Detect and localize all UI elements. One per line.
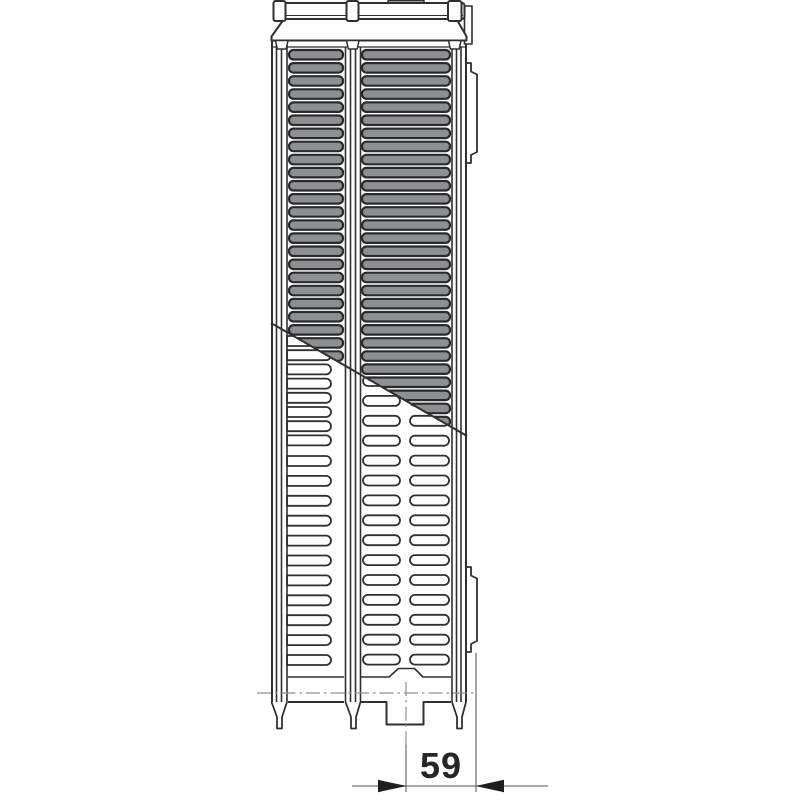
grille-slot bbox=[362, 181, 450, 191]
radiator-technical-diagram: 59 bbox=[0, 0, 800, 800]
fin-slot bbox=[410, 655, 449, 665]
radiator-drawing-canvas: 59 bbox=[0, 0, 800, 800]
fin-bar bbox=[287, 536, 331, 546]
grille-slot bbox=[289, 168, 343, 178]
grille-slot bbox=[289, 233, 343, 243]
grille-slot bbox=[362, 233, 450, 243]
grille-slot bbox=[362, 273, 450, 283]
grille-slot bbox=[362, 364, 450, 374]
grille-slot bbox=[289, 181, 343, 191]
grille-slot bbox=[362, 207, 450, 217]
fin-slot bbox=[410, 615, 449, 625]
grille-slot bbox=[362, 102, 450, 112]
grille-slot bbox=[362, 220, 450, 230]
fin-slot bbox=[363, 575, 400, 585]
grille-slot bbox=[362, 247, 450, 257]
grille-slot bbox=[362, 76, 450, 86]
channel-tip-left bbox=[272, 702, 288, 729]
fin-bar bbox=[287, 364, 331, 374]
fin-bar bbox=[287, 496, 331, 506]
fin-slot bbox=[410, 575, 449, 585]
grille-slot bbox=[362, 116, 450, 126]
grille-slot bbox=[289, 273, 343, 283]
grille-slot bbox=[289, 286, 343, 296]
channel-tip-right bbox=[452, 702, 466, 729]
grille-slot bbox=[362, 50, 450, 60]
grille-slot bbox=[362, 325, 450, 335]
fin-slot bbox=[410, 456, 449, 466]
grille-slot bbox=[289, 247, 343, 257]
fin-bar bbox=[287, 476, 331, 486]
grille-slot bbox=[362, 351, 450, 361]
grille-slot bbox=[289, 299, 343, 309]
dimension-label: 59 bbox=[420, 745, 462, 786]
grille-slot bbox=[362, 89, 450, 99]
dimension-arrow-right bbox=[476, 780, 505, 792]
fin-slot bbox=[363, 436, 400, 446]
grille-slot bbox=[289, 89, 343, 99]
channel-tip-middle bbox=[346, 702, 361, 729]
fin-slot bbox=[363, 535, 400, 545]
grille-slot bbox=[362, 312, 450, 322]
grille-slot bbox=[362, 260, 450, 270]
grille-slot bbox=[289, 129, 343, 139]
fin-bar bbox=[287, 393, 331, 403]
grille-slot bbox=[289, 155, 343, 165]
fin-slot bbox=[410, 555, 449, 565]
fin-slot bbox=[410, 635, 449, 645]
dimension-arrow-left bbox=[378, 780, 407, 792]
fin-slot bbox=[363, 655, 400, 665]
fin-slot bbox=[363, 515, 400, 525]
fin-slot bbox=[363, 416, 400, 426]
grille-slot bbox=[289, 194, 343, 204]
grille-slot bbox=[362, 286, 450, 296]
lower-wall-bracket bbox=[466, 567, 477, 652]
grille-slot bbox=[289, 312, 343, 322]
fin-slot bbox=[410, 476, 449, 486]
fin-slot bbox=[410, 595, 449, 605]
fin-slot bbox=[410, 495, 449, 505]
grille-slot bbox=[289, 76, 343, 86]
grille-slot bbox=[289, 325, 343, 335]
fin-bar bbox=[287, 655, 331, 665]
channel-tips bbox=[272, 702, 467, 729]
grille-slot bbox=[289, 207, 343, 217]
grille-slot bbox=[289, 142, 343, 152]
grille-slot bbox=[362, 168, 450, 178]
fin-slot bbox=[363, 595, 400, 605]
grille-slot bbox=[362, 142, 450, 152]
fin-slot bbox=[363, 476, 400, 486]
rail-cap-right bbox=[448, 1, 462, 21]
fin-bar bbox=[287, 556, 331, 566]
grille-slot bbox=[362, 299, 450, 309]
grille-slot bbox=[289, 116, 343, 126]
grille-slot bbox=[362, 338, 450, 348]
fin-bar bbox=[287, 635, 331, 645]
fin-bar bbox=[287, 595, 331, 605]
grille-slot bbox=[289, 63, 343, 73]
grille-slot bbox=[362, 194, 450, 204]
grille-slot bbox=[289, 50, 343, 60]
upper-wall-bracket bbox=[466, 63, 477, 163]
fin-slot bbox=[363, 456, 400, 466]
fin-slot bbox=[410, 515, 449, 525]
rail-cap-middle bbox=[347, 1, 359, 21]
top-rail bbox=[276, 3, 465, 19]
fin-slot bbox=[410, 535, 449, 545]
fin-bar bbox=[287, 435, 331, 445]
fin-bar bbox=[287, 407, 331, 417]
fin-slot bbox=[363, 615, 400, 625]
grille-slot bbox=[362, 155, 450, 165]
fin-bar bbox=[287, 379, 331, 389]
grille-slot bbox=[289, 102, 343, 112]
grille-slot bbox=[362, 129, 450, 139]
rail-cap-left bbox=[274, 1, 286, 21]
fin-slot bbox=[363, 396, 400, 406]
fin-slot bbox=[363, 495, 400, 505]
grille-slot bbox=[362, 63, 450, 73]
fin-slot bbox=[363, 635, 400, 645]
fin-bar bbox=[287, 516, 331, 526]
fin-bar bbox=[287, 615, 331, 625]
fin-bar bbox=[287, 456, 331, 466]
top-band bbox=[272, 19, 467, 41]
fin-slot bbox=[410, 436, 449, 446]
fin-bar bbox=[287, 575, 331, 585]
grille-slot bbox=[289, 220, 343, 230]
grille-slot bbox=[289, 260, 343, 270]
fin-bar bbox=[287, 421, 331, 431]
fin-slot bbox=[363, 555, 400, 565]
